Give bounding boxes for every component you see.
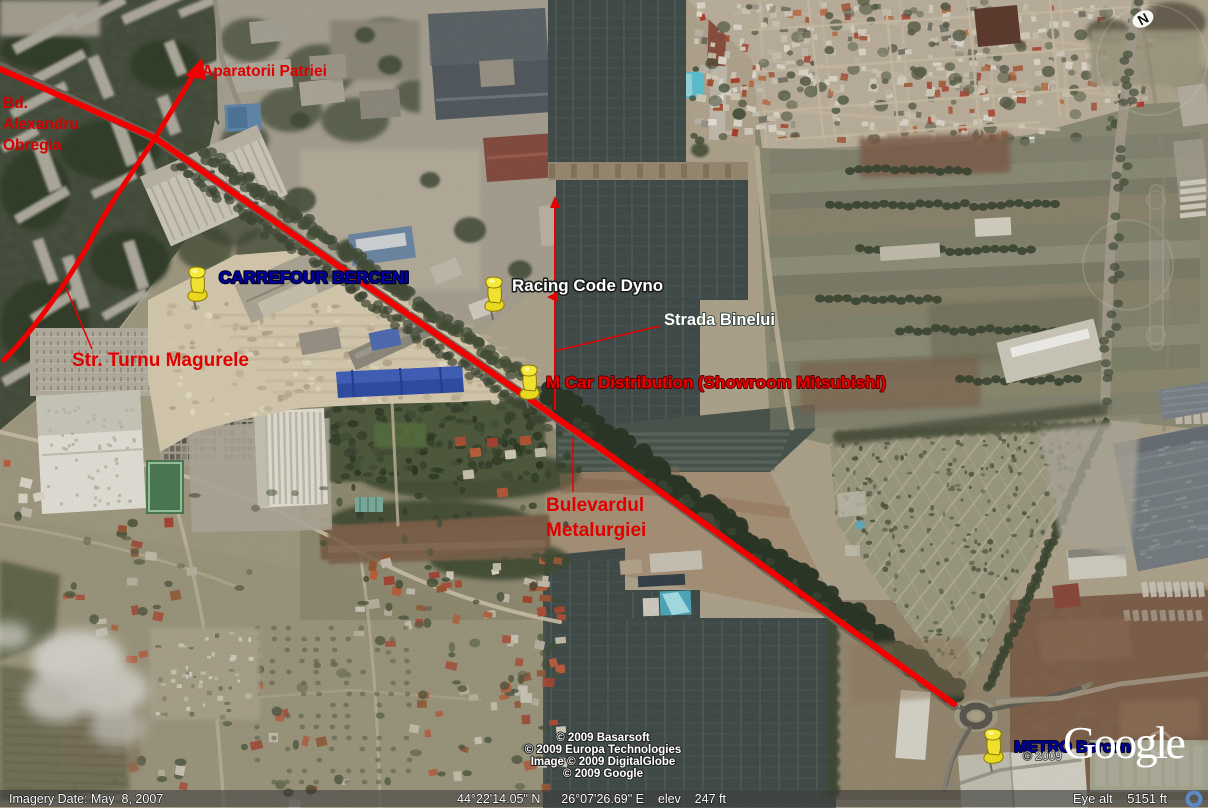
svg-text:Bd.: Bd. — [3, 95, 28, 112]
svg-text:Imagery Date: May 8, 2007: Imagery Date: May 8, 2007 — [9, 792, 163, 806]
svg-text:Google: Google — [1063, 717, 1185, 768]
svg-text:Aparatorii Patriei: Aparatorii Patriei — [202, 63, 327, 80]
svg-text:© 2009 Europa Technologies: © 2009 Europa Technologies — [525, 744, 682, 756]
svg-text:Alexandru: Alexandru — [3, 116, 79, 133]
svg-text:44°22'14.05" N 26°07'26.6: 44°22'14.05" N 26°07'26.69" E elev 247 f… — [457, 792, 726, 806]
svg-text:Eye alt 5151 ft: Eye alt 5151 ft — [1073, 791, 1167, 806]
svg-text:Obregia: Obregia — [3, 137, 62, 154]
svg-text:Racing Code Dyno: Racing Code Dyno — [512, 276, 663, 295]
svg-text:Image © 2009 DigitalGlobe: Image © 2009 DigitalGlobe — [531, 756, 676, 768]
svg-text:CARREFOUR BERCENI: CARREFOUR BERCENI — [219, 268, 409, 287]
svg-text:M Car Distribution (Showroom M: M Car Distribution (Showroom Mitsubishi) — [546, 373, 886, 392]
svg-text:© 2009 Google: © 2009 Google — [563, 768, 643, 780]
svg-text:Strada Binelui: Strada Binelui — [664, 311, 775, 329]
svg-text:Str. Turnu Magurele: Str. Turnu Magurele — [72, 350, 249, 371]
svg-text:© 2009: © 2009 — [1023, 749, 1062, 763]
svg-text:© 2009 Basarsoft: © 2009 Basarsoft — [556, 732, 650, 744]
svg-text:Metalurgiei: Metalurgiei — [546, 520, 646, 541]
svg-text:Bulevardul: Bulevardul — [546, 495, 644, 516]
